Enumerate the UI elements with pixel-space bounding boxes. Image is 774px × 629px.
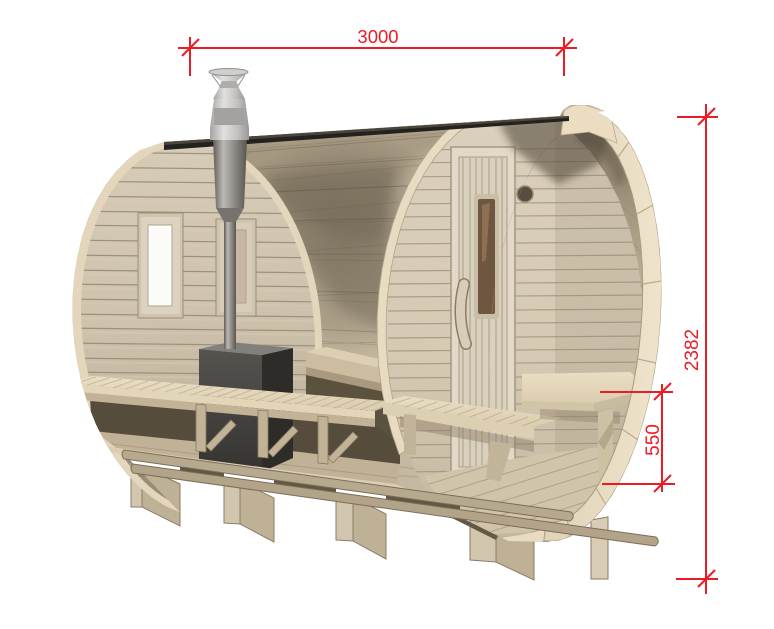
svg-text:3000: 3000 (357, 26, 398, 47)
svg-text:550: 550 (643, 424, 664, 456)
svg-text:2382: 2382 (682, 329, 703, 371)
